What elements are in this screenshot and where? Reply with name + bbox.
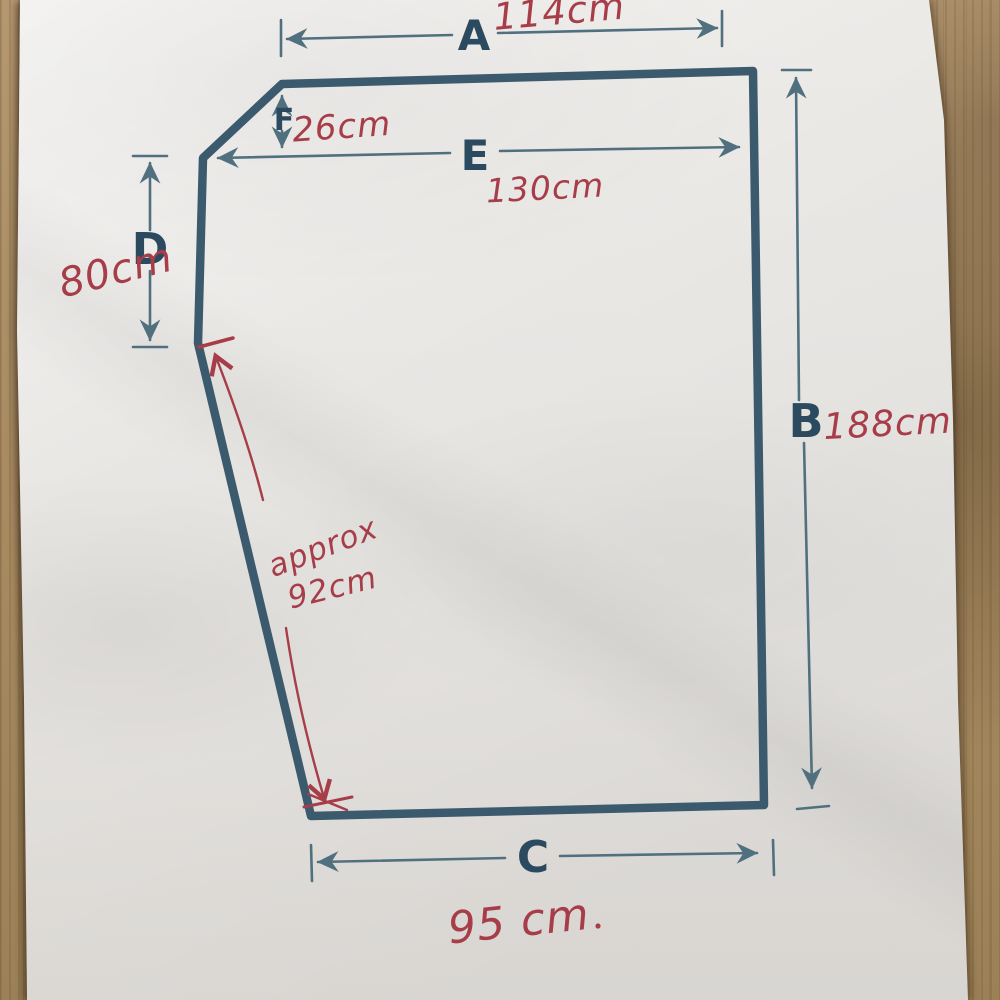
dim-e-line-right xyxy=(500,147,739,151)
dim-c: C 95 cm xyxy=(311,832,774,954)
dim-b-value: 188cm xyxy=(822,400,953,448)
slant-arrow-lower xyxy=(286,628,324,798)
dim-b-line-up xyxy=(796,78,799,400)
dim-a-value: 114cm xyxy=(491,0,626,39)
dim-c-line-left xyxy=(318,858,505,862)
dim-c-tick-left xyxy=(311,845,312,881)
template-shape-outline xyxy=(198,71,764,816)
stray-ink-dot xyxy=(595,923,600,928)
dim-a-letter: A xyxy=(458,11,491,60)
slant-arrow-cross-2 xyxy=(308,794,347,810)
dim-b-letter: B xyxy=(788,394,823,448)
dim-d-value: 80cm xyxy=(54,235,178,308)
dim-a-line-left xyxy=(287,35,452,39)
dim-d: D 80cm xyxy=(54,156,178,347)
dim-e-line-left xyxy=(218,153,450,158)
dim-a: A 114cm xyxy=(281,0,722,60)
dim-c-line-right xyxy=(560,853,757,856)
dimension-diagram: A 114cm E 130cm F 26cm D 80cm xyxy=(0,0,1000,1000)
dim-b-tick-bottom xyxy=(797,806,829,809)
shape-polygon xyxy=(198,71,764,816)
dim-b-line-down xyxy=(804,443,812,788)
dim-b: B 188cm xyxy=(782,70,953,809)
dim-c-tick-right xyxy=(773,840,774,875)
dim-c-letter: C xyxy=(517,832,549,883)
slant-arrow-upper xyxy=(216,357,263,500)
dim-f-value: 26cm xyxy=(291,104,393,151)
dim-c-value: 95 cm xyxy=(445,889,592,955)
dim-e-value: 130cm xyxy=(485,165,605,210)
dim-f: F 26cm xyxy=(274,96,393,151)
slant-corner-tick xyxy=(199,338,233,347)
wood-table-photo: A 114cm E 130cm F 26cm D 80cm xyxy=(0,0,1000,1000)
